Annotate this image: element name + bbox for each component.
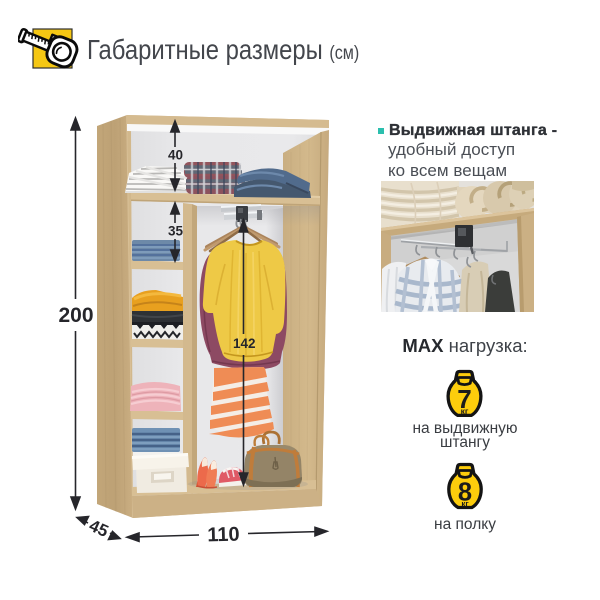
- svg-text:40: 40: [168, 148, 183, 163]
- svg-text:кг: кг: [461, 500, 469, 509]
- svg-text:110: 110: [207, 524, 240, 547]
- svg-text:200: 200: [58, 304, 93, 327]
- svg-text:45: 45: [86, 516, 111, 541]
- svg-text:кг: кг: [461, 406, 469, 416]
- svg-text:35: 35: [168, 224, 184, 239]
- svg-text:142: 142: [233, 336, 256, 351]
